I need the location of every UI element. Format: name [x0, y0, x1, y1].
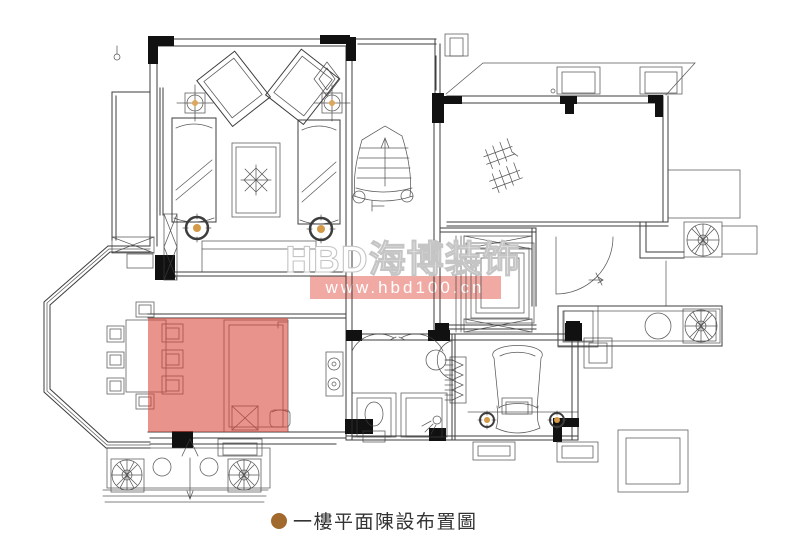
stove	[326, 352, 343, 396]
caption-bullet-icon	[271, 513, 287, 529]
center-rug	[232, 143, 280, 217]
spiral-column-upper	[687, 224, 719, 256]
bed-left	[172, 118, 216, 222]
door-swing	[556, 237, 613, 294]
porch-column-right	[229, 460, 259, 490]
side-corridor	[558, 306, 722, 347]
toilet	[365, 402, 383, 426]
nook-cabinets	[112, 46, 177, 280]
diamond-decor	[314, 62, 340, 96]
bedroom	[450, 346, 578, 434]
wall-lamp-left	[177, 85, 213, 121]
floor-plan-page: www.hbd100.cn	[0, 0, 800, 547]
bed-right	[298, 120, 340, 224]
daybed-left	[197, 51, 271, 126]
highlight-overlay	[148, 318, 288, 432]
wall-lamp-right	[314, 85, 350, 121]
watermark-brand-text: HBD海博装饰	[285, 239, 520, 280]
shower-head	[433, 416, 441, 424]
direction-arrow	[589, 273, 603, 285]
caption: 一樓平面陳設布置圖	[271, 511, 478, 533]
caption-text: 一樓平面陳設布置圖	[293, 511, 478, 533]
floor-plan-drawing: www.hbd100.cn	[0, 0, 800, 547]
watermark-url-text: www.hbd100.cn	[324, 278, 484, 297]
handwritten-note	[478, 137, 527, 194]
staircase	[353, 126, 413, 211]
exterior-steps	[473, 338, 688, 492]
canopy-bed	[493, 346, 543, 434]
bay-window	[44, 246, 150, 448]
downlight-left	[183, 214, 211, 242]
roof-outline	[445, 34, 757, 254]
spiral-column-lower	[685, 310, 717, 342]
downlight-bed-left	[478, 411, 496, 429]
porch-column-left	[112, 460, 142, 490]
toilet-stall	[352, 393, 396, 442]
